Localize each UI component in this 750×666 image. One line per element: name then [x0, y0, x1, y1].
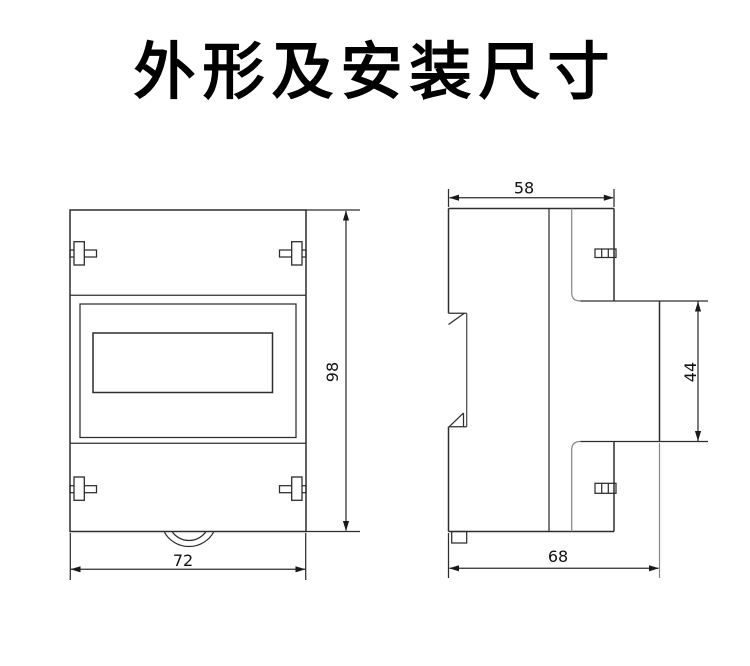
seal-plate [292, 477, 302, 500]
dimension-front-height: 98 [306, 210, 360, 532]
seal-terminal-top-right [280, 242, 307, 265]
dim-label-72: 72 [173, 551, 193, 570]
arrowhead-down [343, 521, 349, 531]
arrowhead-down [695, 431, 701, 441]
seal-plate [74, 242, 84, 265]
din-clip-outer-arc [164, 532, 214, 547]
seal-terminal-bottom-right [280, 477, 307, 500]
din-hook-chamfer-bottom [450, 413, 464, 427]
arrowhead-left [71, 566, 81, 572]
meter-body-outline [70, 210, 306, 532]
seal-terminal-bottom-left [70, 477, 97, 500]
dim-label-68: 68 [548, 547, 568, 566]
front-view [70, 210, 306, 547]
dim-label-44: 44 [681, 362, 700, 382]
terminal-cover-edge-top [572, 209, 581, 302]
front-panel [80, 304, 296, 438]
arrowhead-up [695, 302, 701, 312]
arrowhead-right [604, 195, 614, 201]
dimension-side-depth: 68 [449, 443, 660, 578]
din-clip-tab [452, 532, 467, 544]
side-view [449, 209, 709, 544]
terminal-screw-top [595, 249, 616, 258]
terminal-screw-bottom [595, 483, 616, 493]
arrowhead-up [343, 211, 349, 221]
arrowhead-left [449, 565, 459, 571]
dimension-drawing: 98 72 58 44 68 [0, 0, 750, 666]
dim-label-58: 58 [514, 179, 534, 198]
arrowhead-right [296, 566, 306, 572]
display-window [93, 333, 273, 393]
terminal-screw-body [595, 249, 616, 258]
seal-plate [292, 242, 302, 265]
din-clip-inner-arc [172, 532, 206, 541]
terminal-cover-edge-bottom [572, 442, 581, 532]
seal-plate [74, 477, 84, 500]
arrowhead-left [449, 195, 459, 201]
din-hook-chamfer-top [449, 314, 464, 325]
din-clip-arcs [164, 532, 214, 547]
dimension-side-bezel-height: 44 [681, 302, 701, 442]
dimension-side-top-width: 58 [449, 179, 615, 208]
terminal-screw-body [595, 483, 616, 493]
seal-terminal-top-left [70, 242, 97, 265]
arrowhead-right [649, 565, 659, 571]
dim-label-98: 98 [323, 362, 342, 382]
